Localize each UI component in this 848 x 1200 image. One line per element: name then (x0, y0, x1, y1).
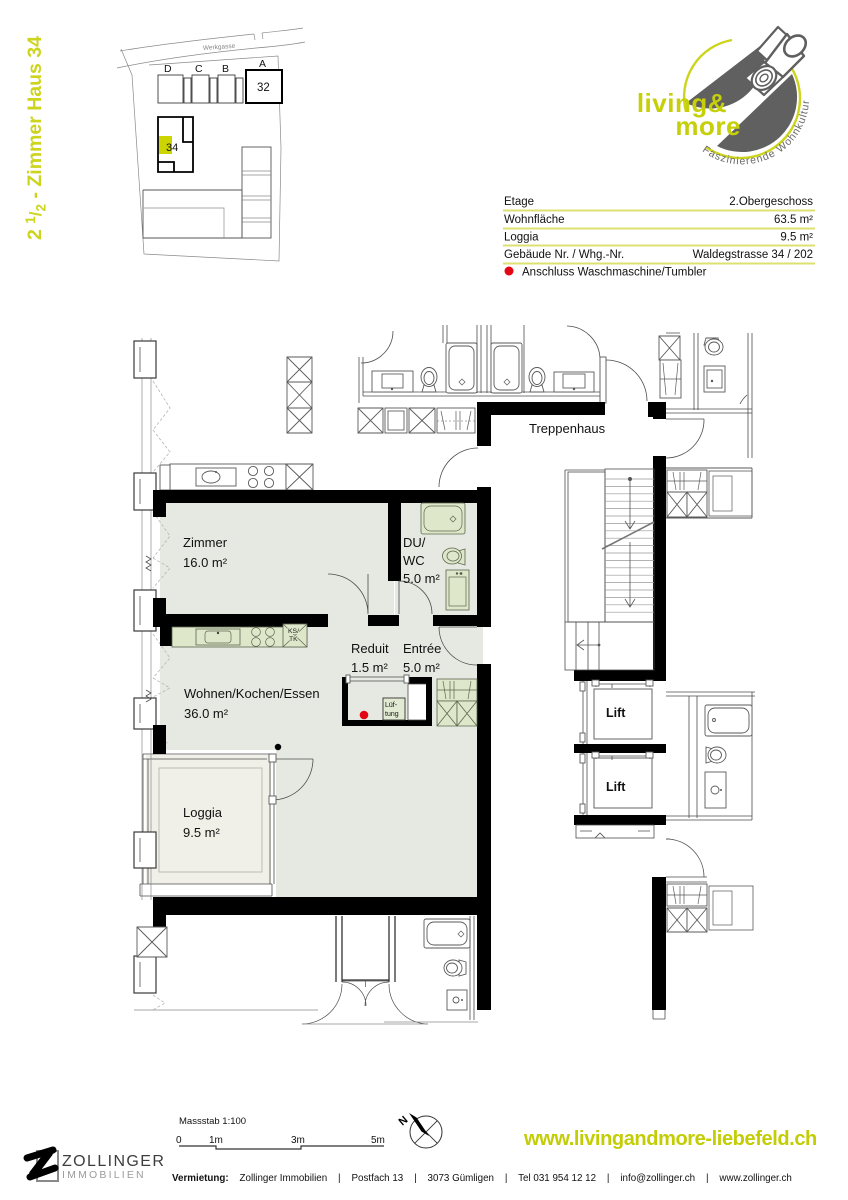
svg-text:Entrée: Entrée (403, 641, 441, 656)
svg-text:Wohnen/Kochen/Essen: Wohnen/Kochen/Essen (184, 686, 320, 701)
svg-text:1.5 m²: 1.5 m² (351, 660, 389, 675)
svg-text:DU/: DU/ (403, 535, 426, 550)
svg-text:36.0 m²: 36.0 m² (184, 706, 229, 721)
svg-text:more: more (675, 111, 741, 141)
svg-text:Reduit: Reduit (351, 641, 389, 656)
svg-text:Waldegstrasse 34 / 202: Waldegstrasse 34 / 202 (693, 249, 813, 261)
svg-text:Etage: Etage (504, 196, 534, 208)
svg-text:Lift: Lift (606, 706, 626, 720)
svg-text:www.livingandmore-liebefeld.ch: www.livingandmore-liebefeld.ch (523, 1128, 817, 1150)
svg-text:WC: WC (403, 553, 425, 568)
svg-text:Loggia: Loggia (183, 805, 223, 820)
svg-text:0: 0 (176, 1135, 182, 1146)
svg-text:Treppenhaus: Treppenhaus (529, 421, 606, 436)
svg-text:3m: 3m (291, 1135, 305, 1146)
svg-text:34: 34 (166, 142, 178, 154)
svg-text:A: A (259, 58, 266, 70)
svg-text:Lüf-: Lüf- (385, 702, 398, 709)
svg-text:5.0 m²: 5.0 m² (403, 571, 441, 586)
svg-text:IMMOBILIEN: IMMOBILIEN (62, 1169, 146, 1181)
svg-text:ZOLLINGER: ZOLLINGER (62, 1153, 165, 1170)
svg-text:B: B (222, 63, 229, 75)
svg-text:Anschluss Waschmaschine/Tumble: Anschluss Waschmaschine/Tumbler (522, 267, 707, 279)
svg-text:9.5 m²: 9.5 m² (780, 232, 813, 244)
svg-text:Gebäude Nr. / Whg.-Nr.: Gebäude Nr. / Whg.-Nr. (504, 249, 624, 261)
svg-text:Vermietung: Zollinger Immob: Vermietung: Zollinger Immobilien | Postf… (172, 1173, 792, 1184)
svg-text:Zimmer: Zimmer (183, 535, 228, 550)
svg-text:tung: tung (385, 711, 399, 718)
svg-text:D: D (164, 63, 172, 75)
svg-text:2.Obergeschoss: 2.Obergeschoss (729, 196, 813, 208)
svg-text:Loggia: Loggia (504, 232, 539, 244)
svg-text:1m: 1m (209, 1135, 223, 1146)
svg-text:5.0 m²: 5.0 m² (403, 660, 441, 675)
svg-text:Wohnfläche: Wohnfläche (504, 214, 565, 226)
svg-text:Lift: Lift (606, 780, 626, 794)
svg-text:16.0 m²: 16.0 m² (183, 555, 228, 570)
svg-text:32: 32 (257, 82, 270, 94)
svg-text:63.5 m²: 63.5 m² (774, 214, 813, 226)
svg-text:KS/: KS/ (288, 628, 299, 635)
svg-text:Massstab 1:100: Massstab 1:100 (179, 1116, 246, 1127)
svg-text:C: C (195, 63, 203, 75)
svg-text:5m: 5m (371, 1135, 385, 1146)
svg-text:TK: TK (289, 636, 298, 643)
svg-text:9.5 m²: 9.5 m² (183, 825, 221, 840)
